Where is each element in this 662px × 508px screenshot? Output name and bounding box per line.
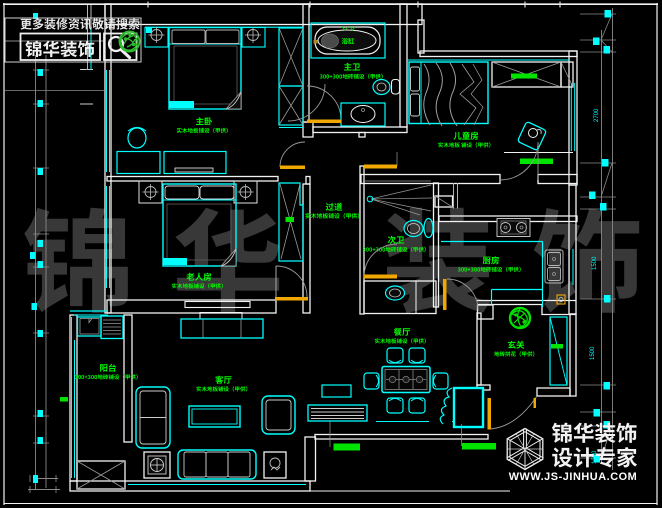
svg-text:2700: 2700	[594, 108, 600, 122]
svg-text:WWW.JS-JINHUA.COM: WWW.JS-JINHUA.COM	[509, 471, 638, 483]
svg-text:1500: 1500	[592, 256, 598, 270]
svg-text:1500: 1500	[590, 346, 596, 360]
